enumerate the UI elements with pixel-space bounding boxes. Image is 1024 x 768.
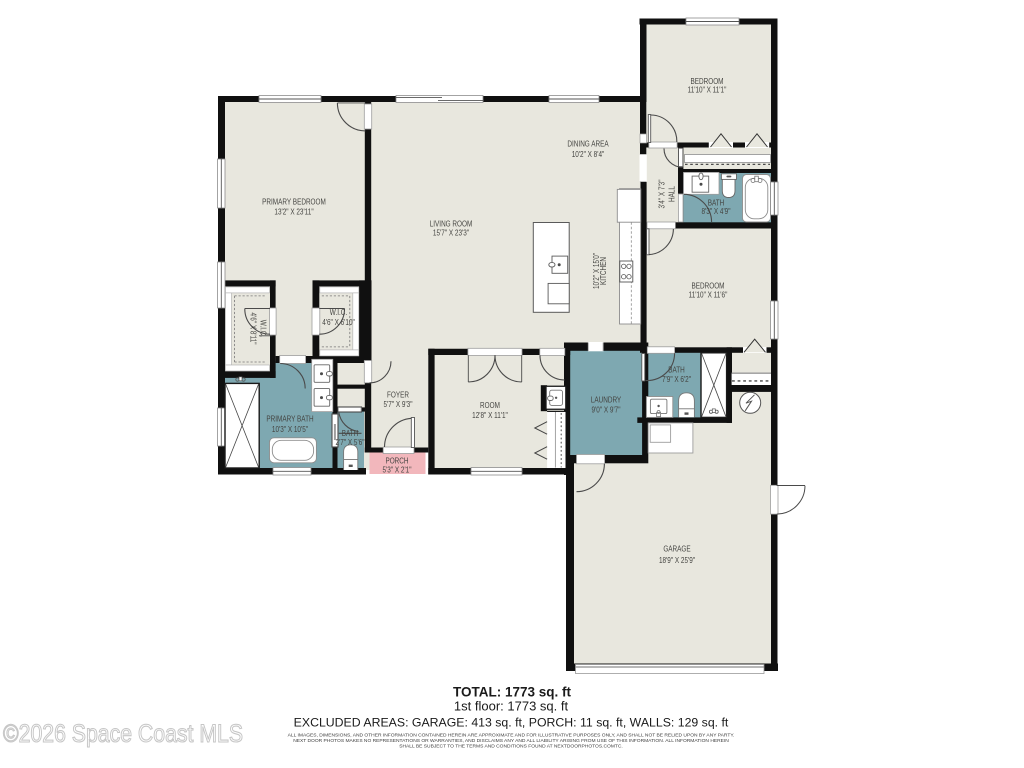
- svg-text:NEXT DOOR PHOTOS MAKES NO REPR: NEXT DOOR PHOTOS MAKES NO REPRESENTATION…: [293, 738, 729, 744]
- svg-text:11'10" X 11'6": 11'10" X 11'6": [689, 290, 728, 300]
- svg-text:W.I.C.: W.I.C.: [258, 320, 268, 337]
- svg-text:2'7" X 5'6": 2'7" X 5'6": [336, 437, 365, 447]
- svg-text:3'4" X 7'3": 3'4" X 7'3": [657, 179, 667, 208]
- svg-text:PRIMARY BATH: PRIMARY BATH: [266, 414, 313, 424]
- svg-text:GARAGE: GARAGE: [663, 544, 690, 554]
- svg-text:©2026 Space Coast MLS: ©2026 Space Coast MLS: [3, 720, 243, 748]
- svg-text:8'3" X 4'9": 8'3" X 4'9": [702, 206, 731, 216]
- svg-text:EXCLUDED AREAS: GARAGE: 413 sq: EXCLUDED AREAS: GARAGE: 413 sq. ft, PORC…: [294, 716, 729, 730]
- svg-text:PRIMARY BEDROOM: PRIMARY BEDROOM: [262, 197, 326, 207]
- svg-text:ALL IMAGES, DIMENSIONS, AND OT: ALL IMAGES, DIMENSIONS, AND OTHER INFORM…: [288, 733, 735, 739]
- svg-text:SHALL BE SUBJECT TO THE TERMS: SHALL BE SUBJECT TO THE TERMS AND CONDIT…: [399, 744, 623, 750]
- svg-text:13'2" X 23'11": 13'2" X 23'11": [274, 207, 314, 217]
- svg-text:18'9" X 25'9": 18'9" X 25'9": [659, 555, 695, 565]
- svg-text:15'7" X 23'3": 15'7" X 23'3": [433, 228, 469, 238]
- svg-text:HALL: HALL: [667, 186, 677, 202]
- svg-text:10'3" X 10'5": 10'3" X 10'5": [272, 424, 308, 434]
- svg-text:1st floor: 1773 sq. ft: 1st floor: 1773 sq. ft: [454, 699, 569, 714]
- svg-text:11'10" X 11'1": 11'10" X 11'1": [688, 85, 727, 95]
- svg-text:12'8" X 11'1": 12'8" X 11'1": [472, 410, 508, 420]
- svg-text:5'7" X 9'3": 5'7" X 9'3": [384, 399, 413, 409]
- svg-text:4'6" X 6'10": 4'6" X 6'10": [322, 317, 355, 327]
- svg-text:ROOM: ROOM: [480, 400, 500, 410]
- svg-text:W.I.C.: W.I.C.: [330, 307, 347, 317]
- svg-text:5'3" X 2'1": 5'3" X 2'1": [382, 465, 411, 475]
- svg-text:TOTAL: 1773 sq. ft: TOTAL: 1773 sq. ft: [453, 685, 572, 700]
- svg-text:9'0" X 9'7": 9'0" X 9'7": [591, 405, 620, 415]
- svg-text:10'2" X 8'4": 10'2" X 8'4": [572, 149, 605, 159]
- svg-text:4'6" X 8'11": 4'6" X 8'11": [248, 312, 258, 344]
- svg-text:LAUNDRY: LAUNDRY: [591, 395, 621, 405]
- svg-text:DINING AREA: DINING AREA: [567, 139, 608, 149]
- svg-text:KITCHEN: KITCHEN: [598, 257, 608, 285]
- svg-text:7'9" X 6'2": 7'9" X 6'2": [662, 374, 691, 384]
